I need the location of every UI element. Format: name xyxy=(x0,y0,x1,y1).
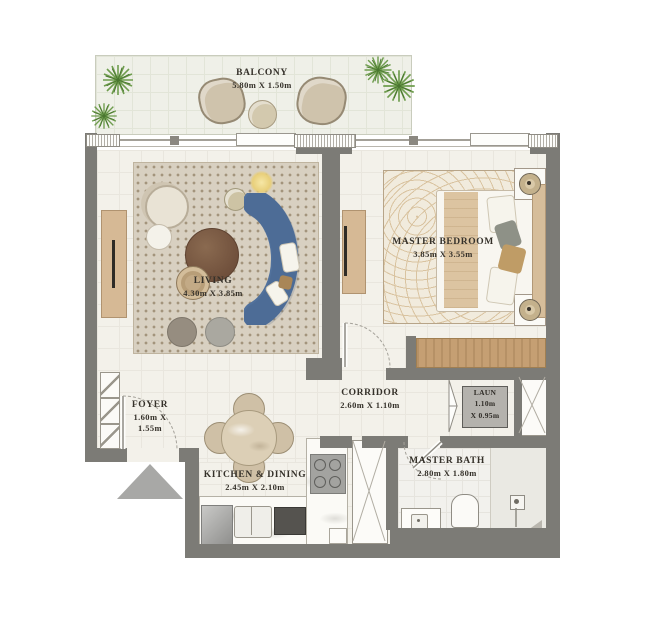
dining-table xyxy=(221,410,277,466)
sliding-door-panel xyxy=(236,133,296,146)
bath-left-wall xyxy=(386,440,398,530)
living-bedroom-divider xyxy=(322,150,340,362)
laundry-dims2: X 0.95m xyxy=(463,410,507,421)
window-mullion xyxy=(409,136,418,145)
shower-head-dot xyxy=(514,499,519,504)
corridor-bottom-wall xyxy=(320,436,352,448)
entry-marker xyxy=(117,464,183,499)
kitchen-left-wall xyxy=(185,448,199,558)
closet-panel xyxy=(100,372,120,398)
plant-icon xyxy=(88,52,152,142)
appliance xyxy=(201,505,233,545)
toilet xyxy=(451,494,479,528)
master-bath-label: MASTER BATH 2.80m X 1.80m xyxy=(387,456,507,479)
small-cabinet xyxy=(329,528,347,544)
master-bedroom-label: MASTER BEDROOM 3.85m X 3.55m xyxy=(373,237,513,260)
foyer-label: FOYER 1.60m X 1.55m xyxy=(110,400,190,433)
laundry-label-box: LAUN 1.10m X 0.95m xyxy=(462,386,508,428)
lamp-dot xyxy=(527,307,531,311)
footstool xyxy=(146,224,172,250)
tall-kitchen-unit xyxy=(352,440,388,544)
kitchen-dining-label: KITCHEN & DINING 2.45m X 2.10m xyxy=(185,470,325,493)
bath-bottom-wall xyxy=(390,528,546,546)
corridor-bottom-wall xyxy=(440,436,546,448)
floor-lamp xyxy=(250,171,273,194)
living-label: LIVING 4.30m X 3.85m xyxy=(153,276,273,299)
window-fixed-panel xyxy=(294,134,356,148)
stove-burner xyxy=(329,459,341,471)
corridor-bottom-wall xyxy=(362,436,408,448)
balcony-table xyxy=(248,100,277,129)
laundry-closet-wall xyxy=(514,376,522,436)
armchair xyxy=(145,185,189,229)
corridor-label: CORRIDOR 2.60m X 1.10m xyxy=(310,388,430,411)
balcony-label: BALCONY 5.80m X 1.50m xyxy=(202,68,322,91)
window-mullion xyxy=(170,136,179,145)
left-wall xyxy=(85,133,97,462)
sliding-door-panel xyxy=(470,133,530,146)
cooktop-appliance xyxy=(274,507,306,535)
laundry-name: LAUN xyxy=(463,387,507,398)
headboard xyxy=(532,184,546,318)
pouf xyxy=(205,317,235,347)
bench xyxy=(416,338,546,368)
entry-door-opening xyxy=(127,448,179,462)
right-wall xyxy=(546,133,560,558)
laundry-dims1: 1.10m xyxy=(463,398,507,409)
corridor-stub-wall xyxy=(306,358,342,380)
tv-screen xyxy=(344,226,347,276)
sink-divider xyxy=(251,507,252,535)
sofa-cushion xyxy=(278,275,293,290)
stove-burner xyxy=(329,476,341,488)
pouf xyxy=(167,317,197,347)
corridor-top-wall xyxy=(386,368,546,380)
console-handle xyxy=(112,240,115,288)
window-fixed-panel xyxy=(528,134,558,148)
kitchen-sink xyxy=(234,506,272,538)
lamp-dot xyxy=(527,181,531,185)
bottom-wall xyxy=(185,544,560,558)
floor-plan: BALCONY 5.80m X 1.50m LIVING 4.30m X 3.8… xyxy=(0,0,660,627)
vanity-faucet-dot xyxy=(417,519,420,522)
wardrobe-closet xyxy=(518,376,548,436)
plant-icon xyxy=(352,48,416,110)
window-fixed-panel xyxy=(86,134,120,147)
wall-stub xyxy=(406,336,416,368)
